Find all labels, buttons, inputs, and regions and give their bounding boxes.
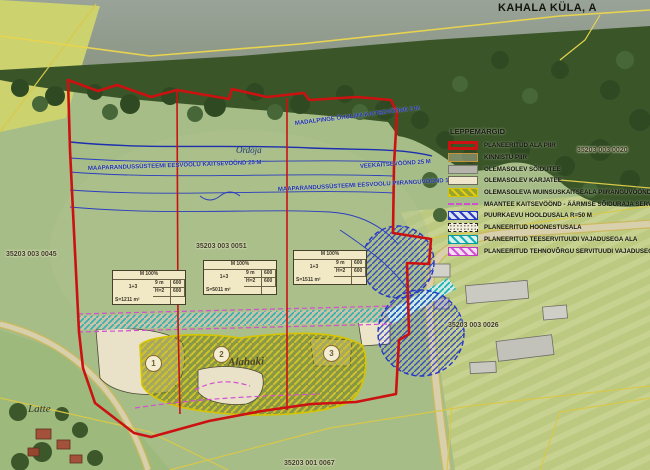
cadastral-label: 35203 001 0067: [284, 460, 335, 467]
property-border-swatch: [448, 153, 478, 162]
table-cell: S=1211 m²: [113, 297, 171, 305]
legend-item-label: PLANEERITUD TEESERVITUUDI VAJADUSEGA ALA: [484, 236, 637, 243]
road-servitude-swatch: [448, 235, 478, 244]
plot-number-1: 1: [145, 355, 162, 372]
plot-number-2: 2: [213, 346, 230, 363]
planned-area-border-swatch: [448, 141, 478, 150]
legend-item-utility-servitude: PLANEERITUD TEHNOVÕRGU SERVITUUDI VAJADU…: [448, 245, 650, 257]
heritage-site-name: Alahaki: [228, 355, 264, 368]
table-cell: 600: [352, 268, 366, 277]
cadastral-label: 35203 003 0045: [6, 251, 57, 258]
farm-name: Latte: [28, 403, 51, 415]
table-cell: 1+3: [294, 260, 334, 277]
plot-table-1: M 100% 9 m 600 1+3 H=2 600 S=1211 m²: [112, 270, 186, 305]
legend-item-label: PLANEERITUD TEHNOVÕRGU SERVITUUDI VAJADU…: [484, 248, 650, 255]
planned-building-swatch: [448, 223, 478, 232]
existing-track-swatch: [448, 176, 478, 185]
legend-item-planned-building: PLANEERITUD HOONESTUSALA: [448, 222, 650, 234]
legend-item-label: PLANEERITUD ALA PIIR: [484, 142, 556, 149]
legend: LEPPEMÄRGID PLANEERITUD ALA PIIR KINNIST…: [448, 127, 650, 257]
table-cell: 9 m: [244, 270, 262, 279]
legend-item-existing-road: OLEMASOLEV SÕIDUTEE: [448, 163, 650, 175]
legend-item-label: PLANEERITUD HOONESTUSALA: [484, 224, 582, 231]
legend-item-existing-track: OLEMASOLEV KARJATEE: [448, 175, 650, 187]
legend-item-label: OLEMASOLEVA MUINSUSKAITSEALA PIIRANGUVÖÖ…: [484, 189, 650, 196]
table-cell: 9 m: [334, 260, 352, 269]
table-cell: H=2: [334, 268, 352, 277]
legend-title: LEPPEMÄRGID: [450, 127, 650, 136]
legend-item-label: PUURKAEVU HOOLDUSALA R=50 M: [484, 212, 592, 219]
legend-item-road-protection: MAANTEE KAITSEVÖÖND - ÄÄRMISE SÕIDURAJA …: [448, 198, 650, 210]
table-cell: H=2: [153, 288, 171, 297]
legend-item-well-maintenance: PUURKAEVU HOOLDUSALA R=50 M: [448, 210, 650, 222]
plan-map: KAHALA KÜLA, A 35203 003 0045 35203 003 …: [0, 0, 650, 470]
cadastral-label: 35203 003 0026: [448, 322, 499, 329]
table-cell: 600: [262, 278, 276, 287]
legend-item-property-border: KINNISTU PIIR: [448, 152, 650, 164]
legend-item-label: OLEMASOLEV KARJATEE: [484, 177, 562, 184]
table-cell: H=2: [244, 278, 262, 287]
plot-table-2: M 100% 9 m 600 1+3 H=2 600 S=5011 m²: [203, 260, 277, 295]
plot-table-3: M 100% 9 m 600 1+3 H=2 600 S=1511 m²: [293, 250, 367, 285]
legend-item-label: MAANTEE KAITSEVÖÖND - ÄÄRMISE SÕIDURAJA …: [484, 201, 650, 208]
heritage-zone-swatch: [448, 188, 478, 197]
table-cell: 600: [171, 280, 185, 289]
legend-item-label: OLEMASOLEV SÕIDUTEE: [484, 166, 561, 173]
plot-number-3: 3: [323, 345, 340, 362]
stream-name: Ordoja: [236, 145, 262, 155]
legend-item-road-servitude: PLANEERITUD TEESERVITUUDI VAJADUSEGA ALA: [448, 234, 650, 246]
table-cell: 9 m: [153, 280, 171, 289]
plot-table-header: M 100%: [113, 271, 185, 280]
existing-road-swatch: [448, 165, 478, 174]
table-cell: 1+3: [113, 280, 153, 297]
legend-item-label: KINNISTU PIIR: [484, 154, 527, 161]
plot-table-header: M 100%: [294, 251, 366, 260]
cadastral-label: 35203 003 0051: [196, 243, 247, 250]
map-title: KAHALA KÜLA, A: [498, 2, 597, 14]
legend-item-heritage-zone: OLEMASOLEVA MUINSUSKAITSEALA PIIRANGUVÖÖ…: [448, 187, 650, 199]
table-cell: S=5011 m²: [204, 287, 262, 295]
table-cell: S=1511 m²: [294, 277, 352, 285]
plot-table-header: M 100%: [204, 261, 276, 270]
road-protection-swatch: [448, 200, 478, 209]
well-maintenance-swatch: [448, 211, 478, 220]
utility-servitude-swatch: [448, 247, 478, 256]
table-cell: 1+3: [204, 270, 244, 287]
table-cell: 600: [352, 260, 366, 269]
table-cell: 600: [171, 288, 185, 297]
legend-item-planned-area-border: PLANEERITUD ALA PIIR: [448, 140, 650, 152]
table-cell: 600: [262, 270, 276, 279]
